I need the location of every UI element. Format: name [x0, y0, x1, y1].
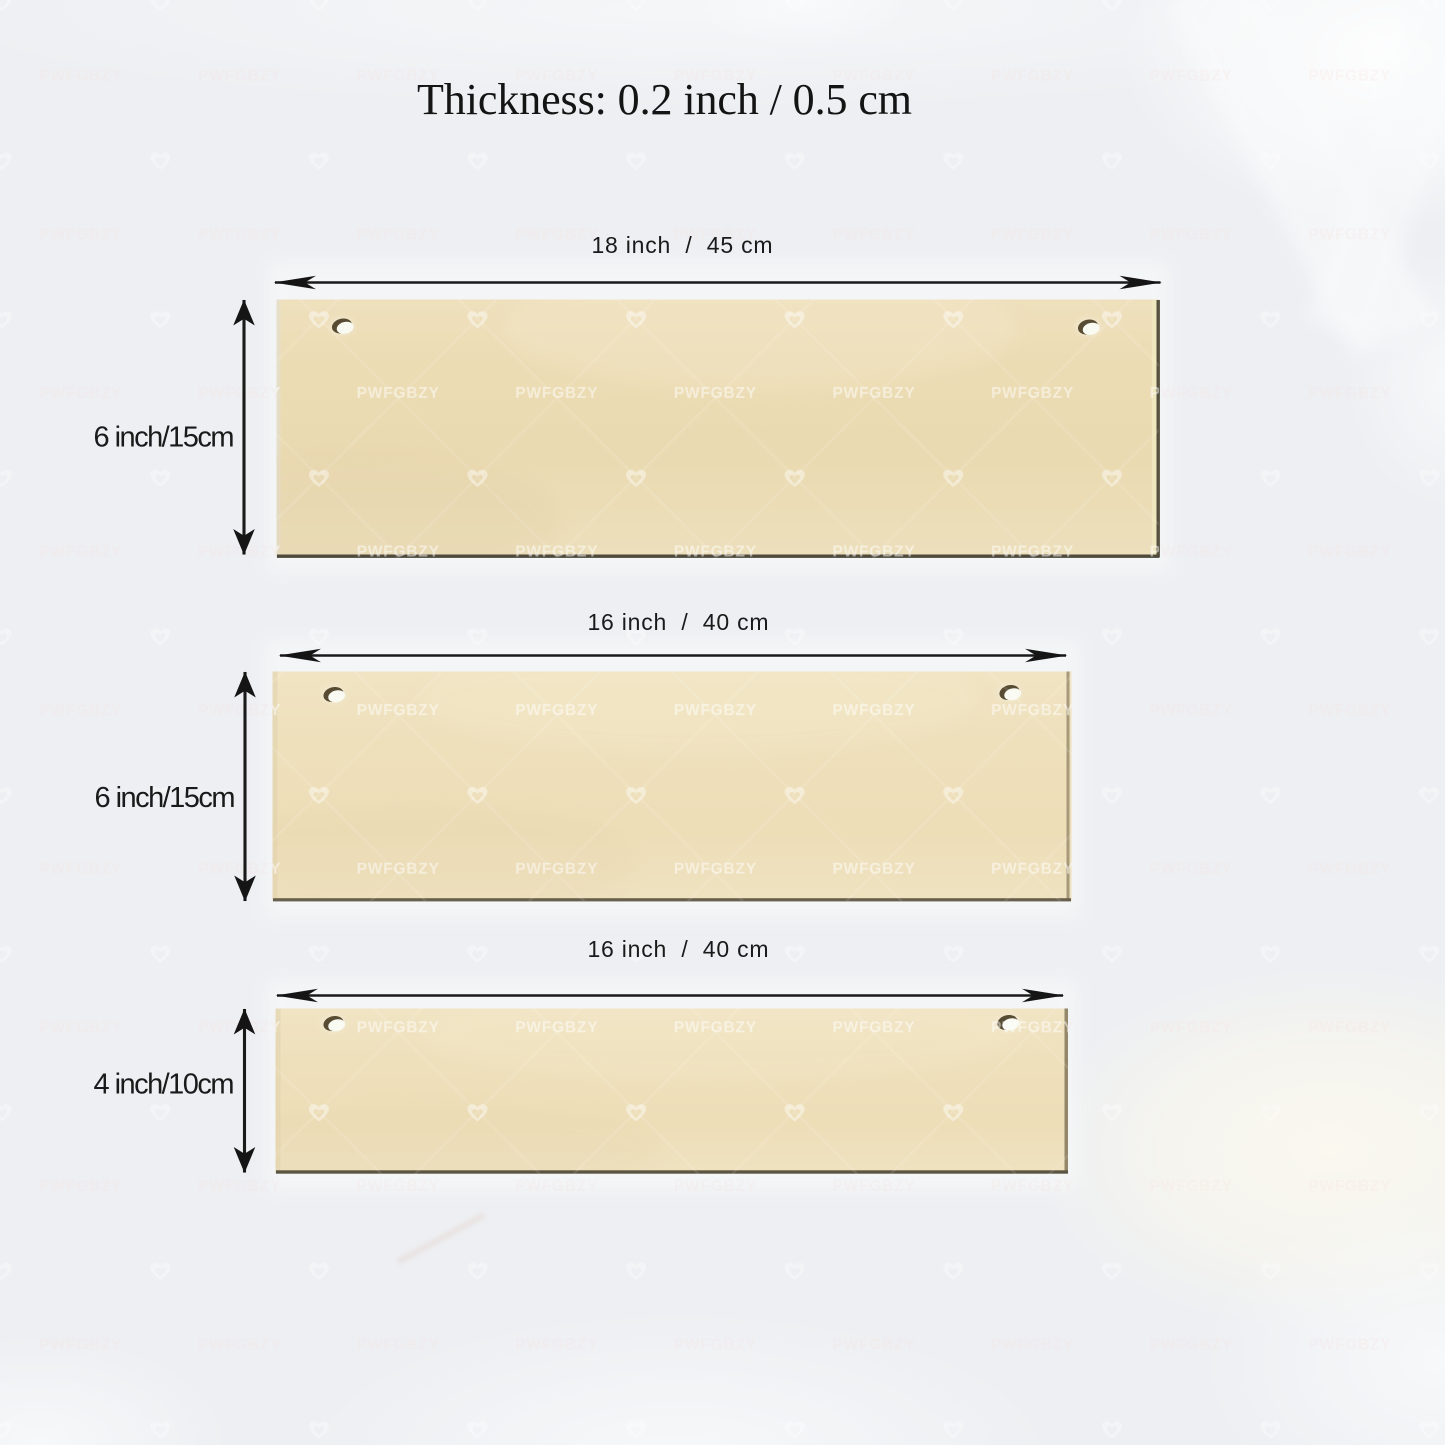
svg-text:18 inch / 45 cm: 18 inch / 45 cm: [592, 232, 773, 258]
svg-text:Thickness: 0.2 inch / 0.5 cm: Thickness: 0.2 inch / 0.5 cm: [417, 75, 912, 124]
svg-text:6 inch/15cm: 6 inch/15cm: [95, 782, 236, 814]
svg-text:4 inch/10cm: 4 inch/10cm: [94, 1069, 235, 1101]
svg-text:16 inch / 40 cm: 16 inch / 40 cm: [588, 609, 769, 635]
svg-text:6 inch/15cm: 6 inch/15cm: [94, 422, 235, 454]
svg-text:16 inch / 40 cm: 16 inch / 40 cm: [588, 936, 769, 962]
